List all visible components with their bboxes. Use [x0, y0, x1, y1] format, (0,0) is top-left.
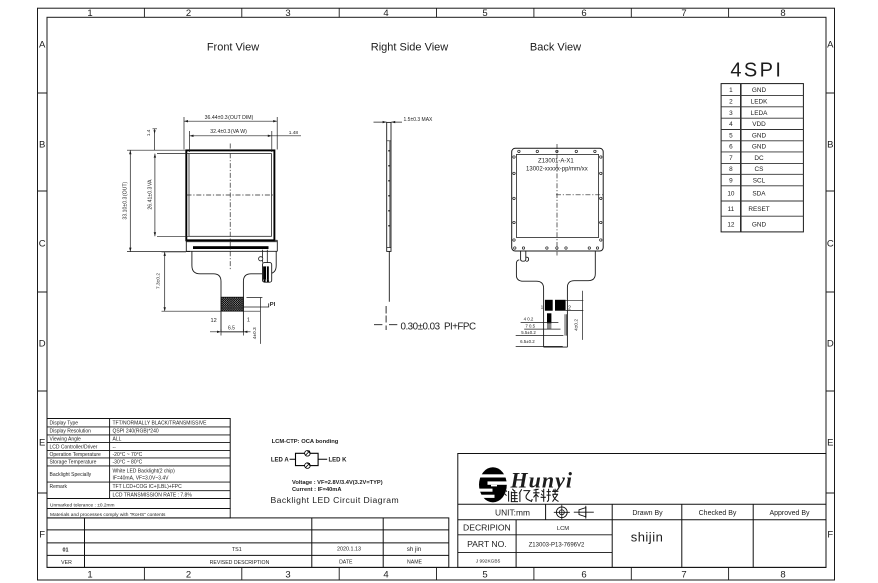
- svg-text:3: 3: [285, 570, 290, 581]
- svg-text:5: 5: [482, 8, 487, 19]
- svg-text:Unmarked tolerance : ±0.2mm: Unmarked tolerance : ±0.2mm: [50, 502, 114, 508]
- svg-text:6.5±0.2: 6.5±0.2: [520, 339, 535, 344]
- svg-text:6: 6: [581, 8, 586, 19]
- svg-text:4: 4: [729, 121, 733, 128]
- svg-text:QSPI 240(RGB)*240: QSPI 240(RGB)*240: [113, 429, 159, 435]
- svg-text:Voltage : VF=2.8V/3.4V(3.2V=TY: Voltage : VF=2.8V/3.4V(3.2V=TYP): [292, 480, 383, 486]
- svg-text:7: 7: [729, 155, 733, 162]
- svg-text:Storage Temperature: Storage Temperature: [50, 460, 97, 466]
- svg-text:SDA: SDA: [752, 191, 766, 198]
- svg-text:sh jin: sh jin: [407, 546, 422, 553]
- svg-text:Z13001-A-X1: Z13001-A-X1: [538, 159, 574, 165]
- svg-text:--: --: [113, 444, 117, 450]
- svg-text:A: A: [39, 40, 46, 51]
- svg-text:-30°C ~ 80°C: -30°C ~ 80°C: [113, 460, 143, 466]
- svg-text:CS: CS: [755, 166, 764, 173]
- svg-text:Display Resolution: Display Resolution: [50, 429, 92, 435]
- svg-text:RESET: RESET: [748, 206, 769, 213]
- svg-text:GND: GND: [752, 221, 767, 228]
- svg-text:6.5: 6.5: [228, 325, 235, 331]
- svg-text:26.41±0.3 VA: 26.41±0.3 VA: [148, 179, 154, 210]
- svg-text:1: 1: [247, 318, 250, 324]
- svg-text:E: E: [827, 437, 833, 448]
- svg-text:6: 6: [581, 570, 586, 581]
- svg-text:5: 5: [729, 132, 733, 139]
- svg-text:Drawn By: Drawn By: [632, 510, 663, 517]
- svg-text:2: 2: [186, 8, 191, 19]
- svg-text:Checked By: Checked By: [699, 510, 737, 517]
- svg-text:White LED Backlight(2 chip): White LED Backlight(2 chip): [113, 469, 176, 475]
- svg-text:J 992KGB5: J 992KGB5: [476, 559, 501, 565]
- svg-text:TS1: TS1: [232, 547, 242, 553]
- svg-text:11: 11: [728, 206, 735, 213]
- svg-text:4: 4: [383, 570, 388, 581]
- svg-text:Current : IF=40mA: Current : IF=40mA: [292, 487, 341, 493]
- svg-text:C: C: [827, 238, 834, 249]
- svg-text:LCD Controller/Driver: LCD Controller/Driver: [50, 444, 98, 450]
- svg-text:E: E: [39, 437, 45, 448]
- svg-text:UNIT:mm: UNIT:mm: [495, 507, 530, 517]
- svg-text:Backlight Specially: Backlight Specially: [50, 472, 92, 478]
- svg-text:Materials and processes comply: Materials and processes comply with "RoH…: [50, 512, 166, 518]
- svg-text:Operation Temperature: Operation Temperature: [50, 452, 102, 458]
- svg-text:TFT LCD+COG IC+(LBL)+FPC: TFT LCD+COG IC+(LBL)+FPC: [113, 484, 183, 490]
- svg-text:9: 9: [729, 177, 733, 184]
- svg-text:Front View: Front View: [207, 42, 259, 54]
- svg-text:4: 4: [383, 8, 388, 19]
- svg-text:1: 1: [729, 87, 733, 94]
- svg-text:5: 5: [482, 570, 487, 581]
- svg-text:0.30±0.03 PI+FPC: 0.30±0.03 PI+FPC: [401, 321, 476, 332]
- svg-text:TFT/NORMALLY BLACK/TRANSMISSIV: TFT/NORMALLY BLACK/TRANSMISSIVE: [113, 421, 208, 427]
- svg-text:LEDK: LEDK: [751, 98, 768, 105]
- svg-text:36.44±0.3 (OUT DIM): 36.44±0.3 (OUT DIM): [205, 115, 254, 121]
- svg-text:PART NO.: PART NO.: [467, 539, 507, 549]
- svg-text:Back View: Back View: [530, 42, 581, 54]
- svg-text:IF=40mA, VF=3.0V~3.4V: IF=40mA, VF=3.0V~3.4V: [113, 476, 170, 482]
- svg-text:7: 7: [681, 570, 686, 581]
- svg-text:Display Type: Display Type: [50, 421, 79, 427]
- svg-text:Z13003-P13-7696V2: Z13003-P13-7696V2: [529, 543, 585, 549]
- svg-text:LEDA: LEDA: [751, 110, 768, 117]
- svg-text:4±0.3: 4±0.3: [252, 327, 258, 339]
- svg-text:B: B: [39, 139, 45, 150]
- svg-text:PI: PI: [270, 302, 276, 308]
- svg-text:Hunyi: Hunyi: [510, 467, 573, 492]
- svg-text:LED A: LED A: [271, 457, 289, 463]
- svg-text:LED K: LED K: [329, 457, 348, 463]
- svg-text:01: 01: [63, 547, 69, 553]
- svg-text:32.4±0.3 (VA W): 32.4±0.3 (VA W): [210, 129, 247, 135]
- svg-text:8: 8: [729, 166, 733, 173]
- svg-text:GND: GND: [752, 87, 767, 94]
- svg-text:4±0.2: 4±0.2: [574, 319, 580, 331]
- svg-text:-20°C ~ 70°C: -20°C ~ 70°C: [113, 452, 143, 458]
- svg-text:VDD: VDD: [752, 121, 766, 128]
- svg-text:LCM: LCM: [557, 526, 569, 532]
- svg-text:B: B: [827, 139, 833, 150]
- svg-text:D: D: [39, 338, 46, 349]
- svg-text:1.4: 1.4: [146, 129, 152, 136]
- svg-text:GND: GND: [752, 132, 767, 139]
- svg-text:10: 10: [727, 191, 735, 198]
- svg-text:C: C: [39, 238, 46, 249]
- svg-text:Backlight LED Circuit Diagram: Backlight LED Circuit Diagram: [271, 495, 400, 505]
- svg-text:Viewing Angle: Viewing Angle: [50, 437, 82, 443]
- svg-text:1: 1: [87, 570, 92, 581]
- svg-text:Remark: Remark: [50, 484, 68, 490]
- svg-text:D: D: [827, 338, 834, 349]
- svg-text:Approved By: Approved By: [769, 510, 810, 517]
- svg-text:REVISED DESCRIPTION: REVISED DESCRIPTION: [210, 560, 270, 566]
- svg-text:LCM-CTP: OCA bonding: LCM-CTP: OCA bonding: [272, 439, 339, 445]
- svg-text:2: 2: [729, 98, 733, 105]
- svg-text:Right Side View: Right Side View: [371, 42, 449, 54]
- svg-text:DC: DC: [754, 155, 764, 162]
- svg-text:4 0.2: 4 0.2: [524, 316, 534, 321]
- svg-text:A: A: [827, 40, 834, 51]
- svg-text:DECRIPION: DECRIPION: [463, 523, 511, 533]
- svg-text:NAME: NAME: [407, 560, 423, 566]
- svg-text:6: 6: [729, 144, 733, 151]
- svg-text:12: 12: [727, 221, 735, 228]
- svg-text:7: 7: [681, 8, 686, 19]
- svg-text:F: F: [39, 529, 45, 540]
- svg-text:8: 8: [780, 8, 785, 19]
- svg-text:1: 1: [541, 305, 544, 311]
- svg-text:3: 3: [729, 110, 733, 117]
- svg-text:DATE: DATE: [339, 560, 353, 566]
- svg-text:7.3±0.2: 7.3±0.2: [156, 273, 162, 289]
- svg-text:ALL: ALL: [113, 437, 122, 443]
- svg-text:SCL: SCL: [753, 177, 766, 184]
- svg-text:shijin: shijin: [631, 530, 664, 545]
- svg-text:2020.1.13: 2020.1.13: [337, 547, 361, 553]
- svg-text:VER: VER: [61, 560, 72, 566]
- svg-text:F: F: [827, 529, 833, 540]
- svg-text:GND: GND: [752, 144, 767, 151]
- svg-text:4SPI: 4SPI: [730, 60, 783, 82]
- svg-text:1: 1: [87, 8, 92, 19]
- svg-text:12: 12: [210, 318, 216, 324]
- svg-text:3: 3: [285, 8, 290, 19]
- svg-text:2: 2: [186, 570, 191, 581]
- svg-text:1.5±0.3 MAX: 1.5±0.3 MAX: [404, 117, 434, 123]
- svg-text:8: 8: [780, 570, 785, 581]
- svg-text:LCD TRANSMISSION RATE : 7.8%: LCD TRANSMISSION RATE : 7.8%: [113, 493, 193, 499]
- svg-text:7 0.5: 7 0.5: [525, 323, 535, 328]
- svg-text:5.5±0.2: 5.5±0.2: [521, 330, 536, 335]
- svg-text:1.48: 1.48: [289, 130, 299, 136]
- svg-text:33.10±0.3 (OUT): 33.10±0.3 (OUT): [122, 181, 128, 219]
